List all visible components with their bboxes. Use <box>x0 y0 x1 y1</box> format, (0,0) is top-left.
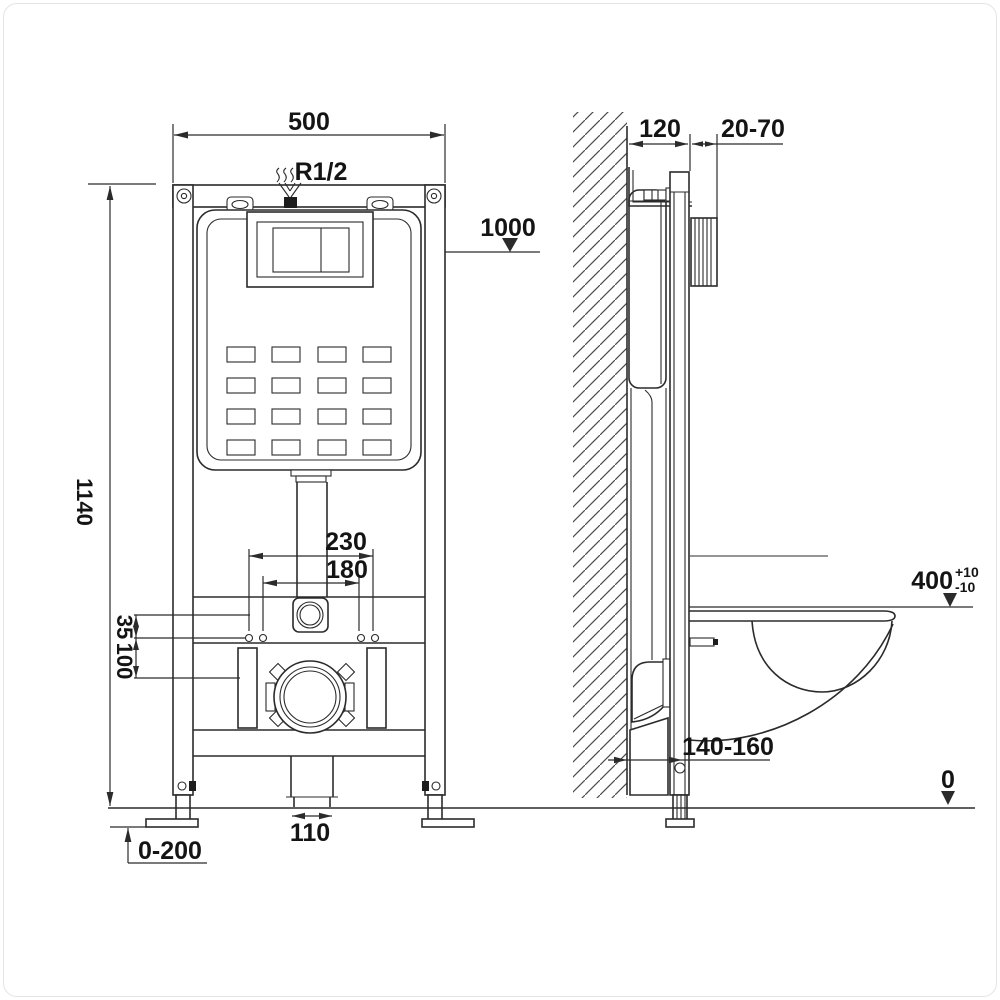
dim-label-r12: R1/2 <box>295 158 348 186</box>
dim-label-110: 110 <box>290 819 330 847</box>
water-squiggle-2 <box>284 168 287 182</box>
leg-clamp-left <box>189 781 196 791</box>
leg-pin-hole-left <box>178 782 186 790</box>
outlet-box-side <box>630 718 668 795</box>
dim-label-400-minus: -10 <box>955 579 975 595</box>
leg-clamp-right <box>422 781 429 791</box>
frame-top-rail <box>173 185 445 207</box>
fixing-hole-3 <box>358 635 365 642</box>
dim-label-500: 500 <box>288 108 330 136</box>
wall-section <box>573 112 627 798</box>
dim-label-0: 0 <box>941 766 955 794</box>
post-hole <box>675 763 685 773</box>
fixing-hole-1 <box>246 635 253 642</box>
dim-frame-height: 1140 <box>72 184 156 806</box>
dim-label-35: 35 <box>112 615 137 639</box>
stud-plate-right <box>367 648 386 728</box>
installation-diagram: 500 R1/2 1000 1140 <box>0 0 1000 1000</box>
drain-outlet <box>266 661 354 733</box>
flush-plate <box>247 212 373 287</box>
side-foot-plate <box>666 819 694 827</box>
dim-label-20-70: 20-70 <box>721 115 785 143</box>
corner-screw-right <box>427 189 441 203</box>
dim-depth: 120 <box>629 115 690 171</box>
dim-label-230: 230 <box>325 528 367 556</box>
flush-buttons <box>273 228 349 272</box>
fixing-hole-2 <box>260 635 267 642</box>
toilet-bowl-side <box>689 556 895 741</box>
dim-level-1000: 1000 <box>445 214 540 252</box>
wall-hatch <box>573 112 627 798</box>
bowl-outer <box>689 624 893 741</box>
dim-label-100: 100 <box>112 643 137 680</box>
inlet-connection <box>293 598 328 632</box>
leg-pin-hole-right <box>432 782 440 790</box>
water-squiggle-3 <box>291 168 294 182</box>
frame-right-rail <box>425 185 445 795</box>
dim-label-400-plus: +10 <box>955 564 979 580</box>
post-body <box>670 172 689 795</box>
dim-plate-range: 20-70 <box>692 115 785 219</box>
drawing-canvas: 500 R1/2 1000 1140 <box>0 0 1000 1000</box>
elbow-flange <box>663 659 670 707</box>
dim-label-1140: 1140 <box>72 478 97 526</box>
dim-label-120: 120 <box>639 115 681 143</box>
front-view <box>146 168 474 827</box>
bowl-inner <box>752 621 892 692</box>
inlet-fitting <box>284 197 297 208</box>
bracket-bolt <box>644 190 666 200</box>
frame-post-side <box>670 172 689 795</box>
dim-label-400: 400 <box>911 567 953 595</box>
drain-elbow-side <box>630 659 670 795</box>
dim-foot-range: 0-200 <box>110 827 207 865</box>
dim-seat-height: 400 +10 -10 <box>689 564 979 607</box>
dim-label-140-160: 140-160 <box>682 733 774 761</box>
drain-flange <box>274 661 346 733</box>
dim-label-1000: 1000 <box>480 214 536 242</box>
bowl-rim <box>689 611 895 621</box>
water-squiggle-1 <box>277 168 280 182</box>
side-view <box>573 112 895 827</box>
corner-screw-left <box>177 189 191 203</box>
dim-label-0-200: 0-200 <box>138 837 202 865</box>
dim-drain-width: 110 <box>290 813 332 847</box>
level-triangle-400 <box>943 593 957 607</box>
cistern-side <box>629 190 666 388</box>
dim-floor-level: 0 <box>941 766 955 805</box>
bowl-fixing-bolt <box>690 638 714 646</box>
frame-left-rail <box>173 185 193 795</box>
side-foot <box>666 795 694 827</box>
fixing-hole-4 <box>372 635 379 642</box>
dim-label-180: 180 <box>326 556 368 584</box>
foot-plate-left <box>146 819 198 827</box>
foot-plate-right <box>422 819 474 827</box>
stud-plate-left <box>238 648 257 728</box>
flush-plate-side <box>691 218 717 286</box>
bottom-drain-pipe <box>286 756 338 807</box>
